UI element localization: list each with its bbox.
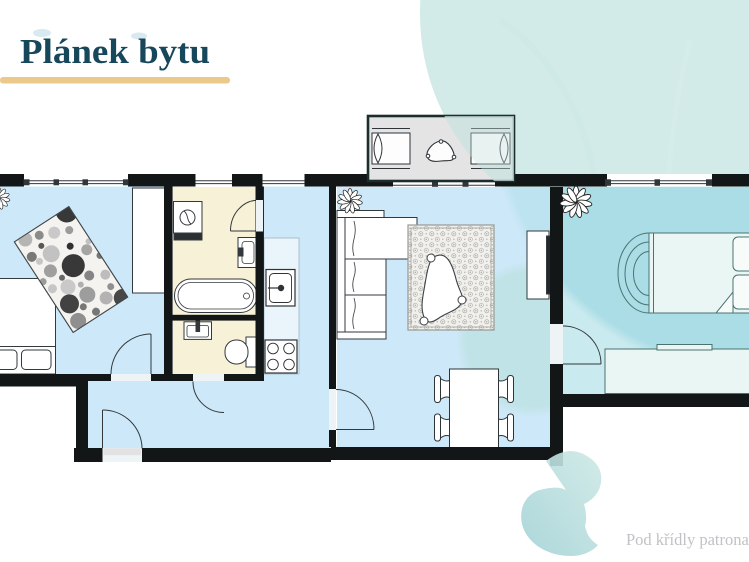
- svg-text:Plánek bytu: Plánek bytu: [20, 32, 210, 71]
- svg-text:Pod křídly patrona m: Pod křídly patrona m: [626, 530, 749, 549]
